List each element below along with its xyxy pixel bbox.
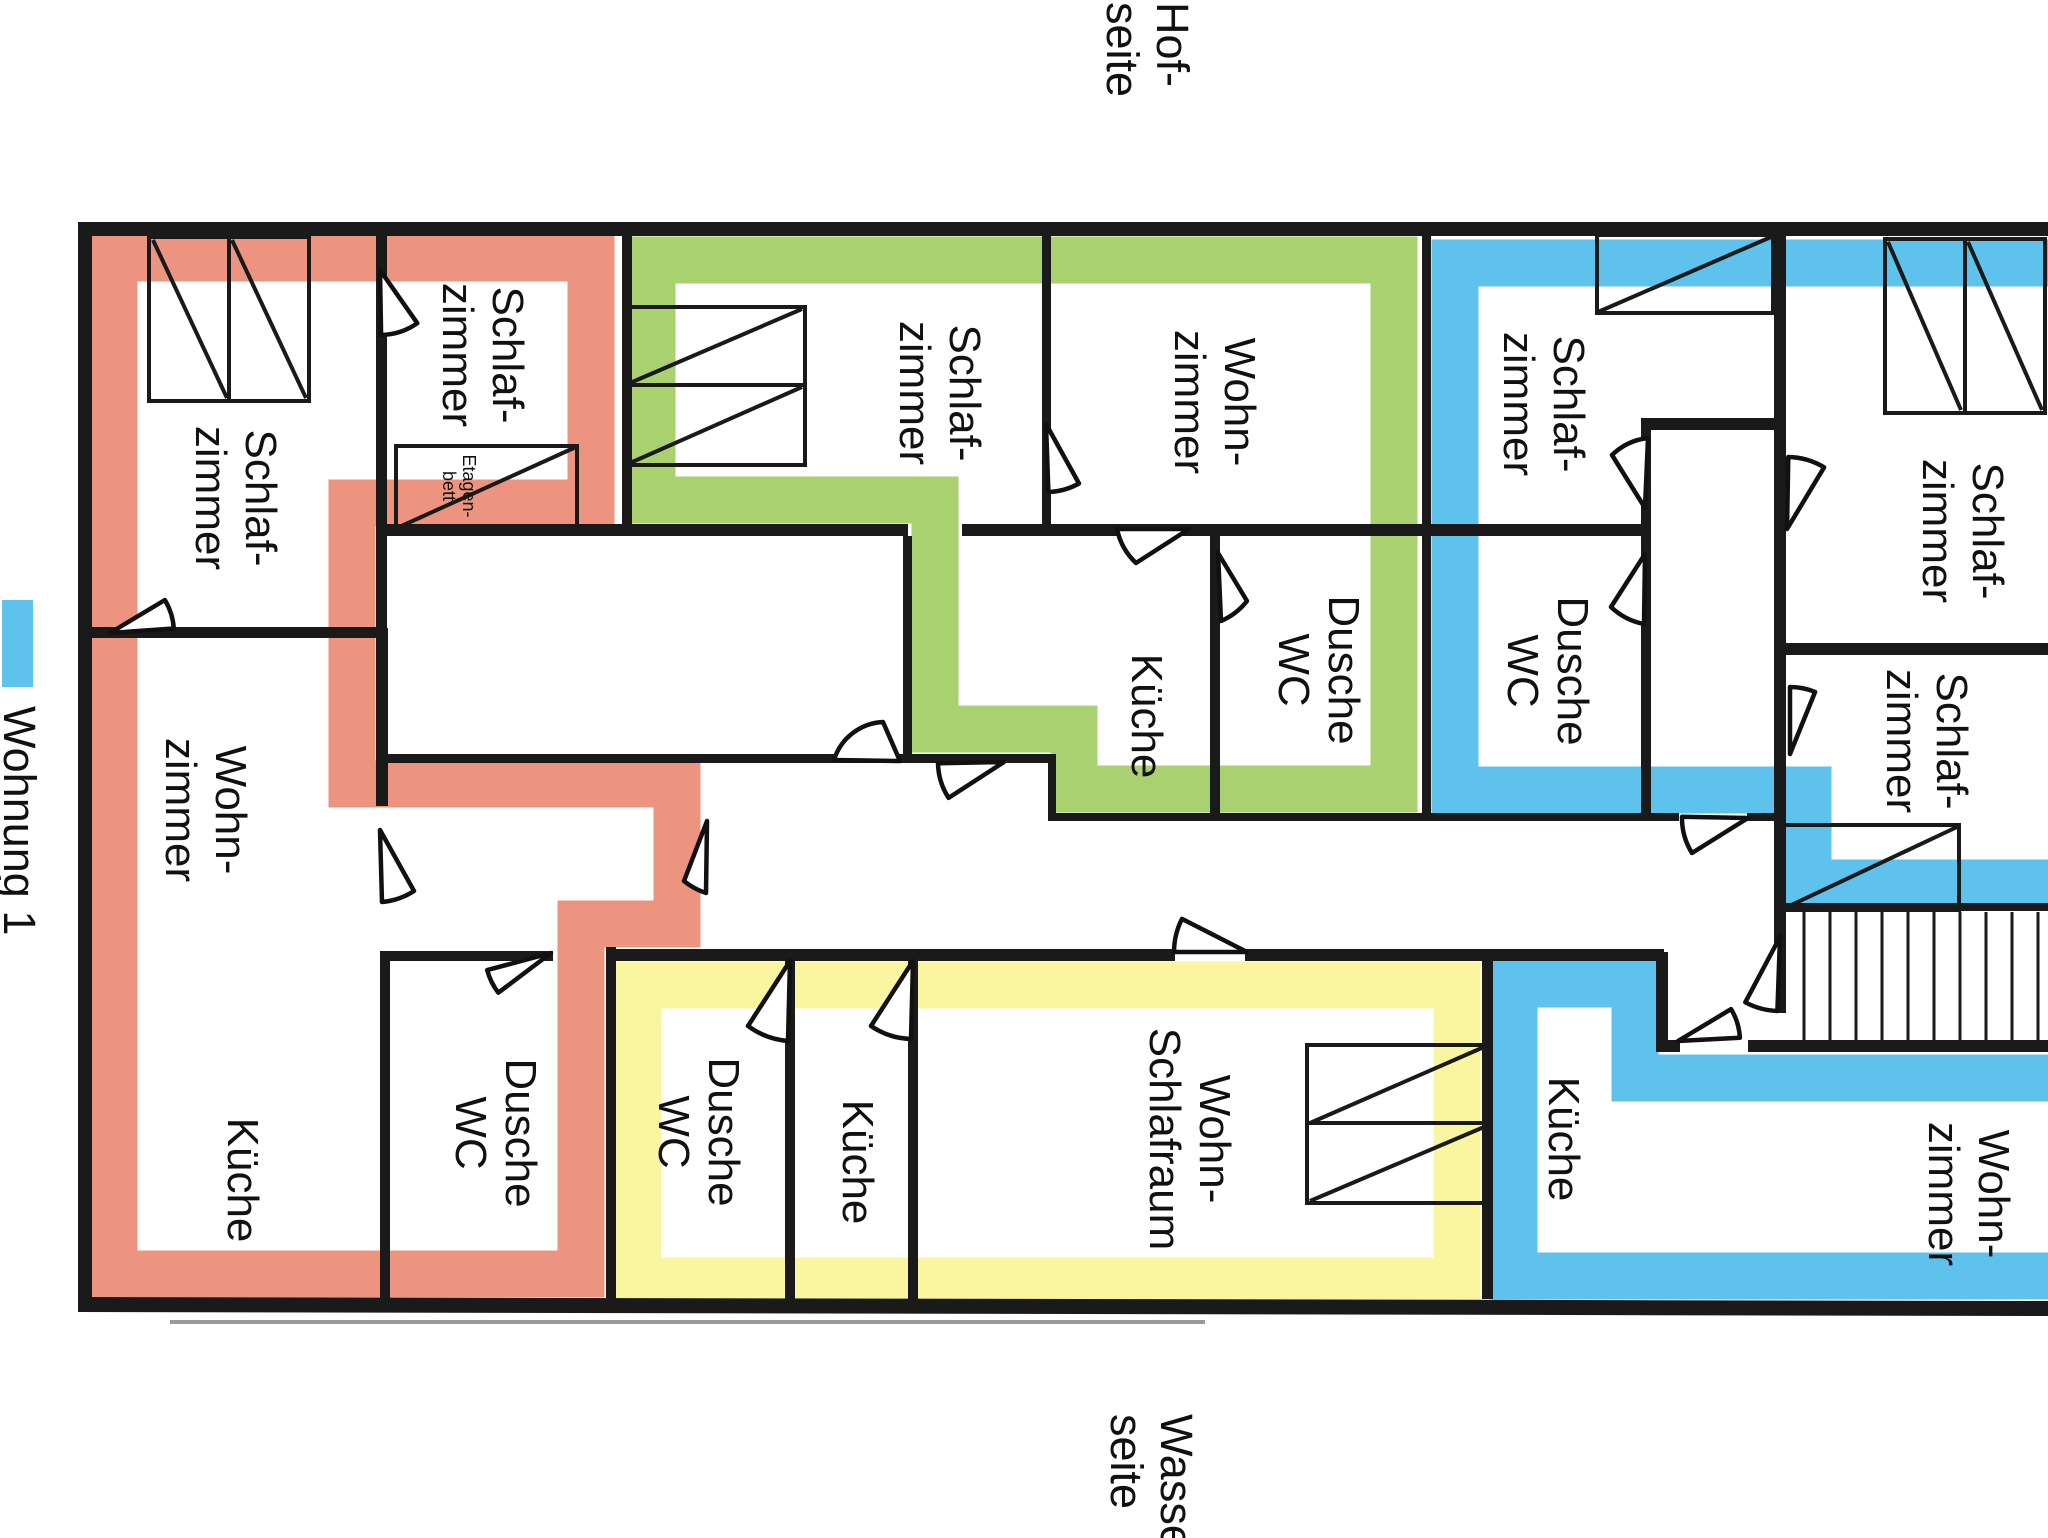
svg-text:Küche: Küche xyxy=(1539,1077,1588,1202)
svg-text:Wohn-zimmer: Wohn-zimmer xyxy=(1165,330,1264,474)
svg-text:Hof-seite: Hof-seite xyxy=(1097,2,1198,97)
svg-text:Wohnung 1: Wohnung 1 xyxy=(0,706,45,935)
svg-text:Wohn-zimmer: Wohn-zimmer xyxy=(156,738,255,882)
svg-text:Schlaf-zimmer: Schlaf-zimmer xyxy=(890,321,989,465)
svg-text:Schlaf-zimmer: Schlaf-zimmer xyxy=(186,426,285,570)
svg-text:Schlaf-zimmer: Schlaf-zimmer xyxy=(1877,669,1976,813)
svg-text:Küche: Küche xyxy=(1122,654,1171,779)
svg-text:Schlaf-zimmer: Schlaf-zimmer xyxy=(433,283,532,427)
svg-text:Küche: Küche xyxy=(833,1100,882,1225)
svg-text:Küche: Küche xyxy=(218,1118,267,1243)
svg-text:Schlaf-zimmer: Schlaf-zimmer xyxy=(1494,332,1593,476)
svg-text:Wohn-zimmer: Wohn-zimmer xyxy=(1919,1122,2018,1266)
svg-text:Schlaf-zimmer: Schlaf-zimmer xyxy=(1913,459,2012,603)
